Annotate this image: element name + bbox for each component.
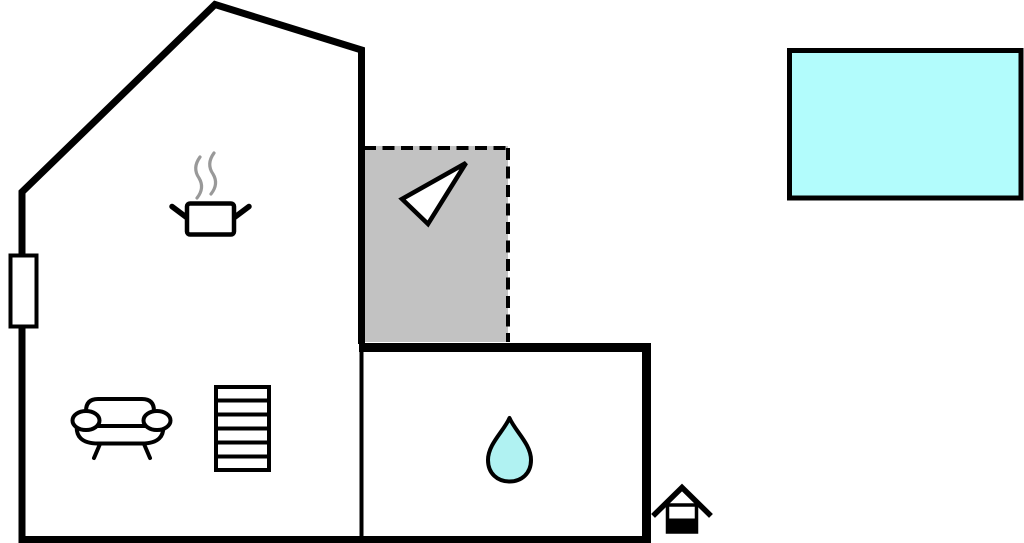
pot-handle-left: [172, 207, 186, 218]
swimming-pool: [790, 51, 1022, 199]
floor-plan-drawing: [0, 0, 1024, 543]
sofa-leg-left: [94, 444, 100, 458]
cooking-pot-icon: [187, 204, 234, 235]
window-marker: [11, 256, 37, 327]
house-outline: [11, 5, 651, 543]
terrace-area: [364, 146, 510, 342]
floor-plan: [0, 0, 1024, 543]
water-drop-icon: [488, 418, 531, 482]
terrace-fill: [364, 146, 508, 342]
house-outer-wall: [22, 5, 362, 543]
steam-icon: [196, 157, 202, 198]
stairs-icon: [216, 387, 269, 470]
kitchen-symbol: [172, 153, 249, 235]
annex-body-lower: [667, 519, 698, 533]
sofa-armrest-right: [144, 411, 171, 430]
sofa-armrest-left: [73, 411, 100, 430]
annex-house-icon: [655, 488, 709, 533]
sofa-leg-right: [144, 444, 150, 458]
steam-icon: [210, 153, 216, 194]
pot-handle-right: [235, 207, 249, 218]
sofa-icon: [73, 399, 171, 458]
